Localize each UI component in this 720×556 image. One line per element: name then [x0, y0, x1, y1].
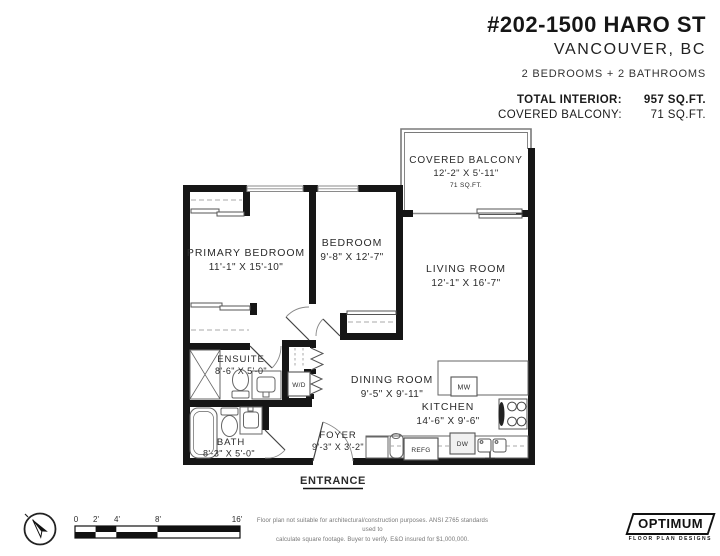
svg-text:12'-2" X 5'-11": 12'-2" X 5'-11" — [433, 168, 498, 179]
stat-label: TOTAL INTERIOR: — [517, 94, 622, 106]
city-subtitle: VANCOUVER, BC — [487, 41, 706, 59]
optimum-logo: OPTIMUM FLOOR PLAN DESIGNS — [629, 513, 712, 542]
logo-name: OPTIMUM — [638, 516, 703, 531]
svg-text:9'-8" X 12'-7": 9'-8" X 12'-7" — [320, 252, 383, 263]
linen-closet — [295, 348, 303, 367]
scale-bar: 0 2' 4' 8' 16' — [74, 515, 243, 538]
logo-frame: OPTIMUM — [625, 513, 715, 535]
svg-text:8': 8' — [155, 515, 161, 524]
svg-text:2': 2' — [93, 515, 99, 524]
svg-text:14'-6" X 9'-6": 14'-6" X 9'-6" — [416, 416, 479, 427]
svg-text:REFG: REFG — [411, 447, 430, 454]
svg-text:DINING ROOM: DINING ROOM — [351, 374, 433, 386]
primary-closet-top — [191, 200, 244, 216]
svg-text:8'-3" X 5'-0": 8'-3" X 5'-0" — [203, 449, 255, 459]
room-label-living-room: LIVING ROOM 12'-1" X 16'-7" — [426, 263, 506, 289]
svg-text:LIVING ROOM: LIVING ROOM — [426, 263, 506, 275]
svg-text:9'-3" X 3'-2": 9'-3" X 3'-2" — [312, 442, 364, 452]
stove — [499, 399, 528, 429]
stat-covered-balcony: COVERED BALCONY: 71 SQ.FT. — [487, 109, 706, 121]
svg-text:8'-6" X 5'-0": 8'-6" X 5'-0" — [215, 366, 267, 376]
svg-text:ENSUITE: ENSUITE — [217, 354, 264, 365]
svg-text:16': 16' — [232, 515, 243, 524]
disclaimer-line: calculate square footage. Buyer to verif… — [250, 536, 495, 545]
logo-tagline: FLOOR PLAN DESIGNS — [629, 536, 712, 542]
room-label-covered-balcony: COVERED BALCONY 12'-2" X 5'-11" 71 SQ.FT… — [409, 155, 523, 189]
disclaimer-text: Floor plan not suitable for architectura… — [250, 517, 495, 545]
room-label-bedroom: BEDROOM 9'-8" X 12'-7" — [320, 237, 383, 263]
bedroom-door — [316, 319, 340, 336]
room-label-dining-room: DINING ROOM 9'-5" X 9'-11" — [351, 374, 433, 400]
stat-value: 71 SQ.FT. — [622, 109, 706, 121]
sliding-door — [413, 209, 522, 218]
room-label-ensuite: ENSUITE 8'-6" X 5'-0" — [215, 354, 267, 376]
svg-text:FOYER: FOYER — [319, 430, 356, 441]
disclaimer-line: Floor plan not suitable for architectura… — [250, 517, 495, 536]
room-label-foyer: FOYER 9'-3" X 3'-2" — [312, 430, 364, 452]
svg-text:ENTRANCE: ENTRANCE — [300, 475, 366, 487]
svg-text:DW: DW — [457, 441, 469, 448]
svg-text:4': 4' — [114, 515, 120, 524]
stat-label: COVERED BALCONY: — [498, 109, 622, 121]
listing-header: #202-1500 HARO ST VANCOUVER, BC 2 BEDROO… — [487, 12, 706, 121]
room-label-kitchen: KITCHEN 14'-6" X 9'-6" — [416, 401, 479, 427]
primary-bedroom-door — [286, 307, 309, 340]
bath-toilet — [221, 408, 238, 437]
page-title: #202-1500 HARO ST — [487, 12, 706, 38]
windows — [247, 186, 358, 192]
bath-vanity — [240, 407, 262, 434]
kitchen-sink — [478, 439, 506, 459]
stat-total-interior: TOTAL INTERIOR: 957 SQ.FT. — [487, 94, 706, 106]
svg-text:12'-1" X 16'-7": 12'-1" X 16'-7" — [431, 278, 500, 289]
svg-text:PRIMARY BEDROOM: PRIMARY BEDROOM — [187, 247, 305, 259]
primary-closet-bottom — [191, 303, 250, 330]
entrance-label: ENTRANCE — [300, 475, 366, 489]
svg-text:0: 0 — [74, 515, 79, 524]
bath-door — [265, 430, 285, 458]
north-arrow-icon — [25, 514, 56, 545]
svg-text:71 SQ.FT.: 71 SQ.FT. — [450, 182, 482, 189]
stat-value: 957 SQ.FT. — [622, 94, 706, 106]
svg-text:KITCHEN: KITCHEN — [422, 401, 474, 413]
svg-text:9'-5" X 9'-11": 9'-5" X 9'-11" — [361, 389, 424, 400]
svg-text:W/D: W/D — [292, 382, 306, 389]
bedroom-closet — [347, 311, 396, 322]
svg-text:BEDROOM: BEDROOM — [322, 237, 383, 249]
bed-bath-summary: 2 BEDROOMS + 2 BATHROOMS — [487, 68, 706, 80]
svg-text:COVERED BALCONY: COVERED BALCONY — [409, 155, 523, 166]
svg-text:11'-1" X 15'-10": 11'-1" X 15'-10" — [209, 262, 283, 273]
area-stats: TOTAL INTERIOR: 957 SQ.FT. COVERED BALCO… — [487, 94, 706, 121]
svg-text:MW: MW — [457, 385, 470, 392]
room-label-primary-bedroom: PRIMARY BEDROOM 11'-1" X 15'-10" — [187, 247, 305, 273]
svg-text:BATH: BATH — [217, 437, 245, 448]
